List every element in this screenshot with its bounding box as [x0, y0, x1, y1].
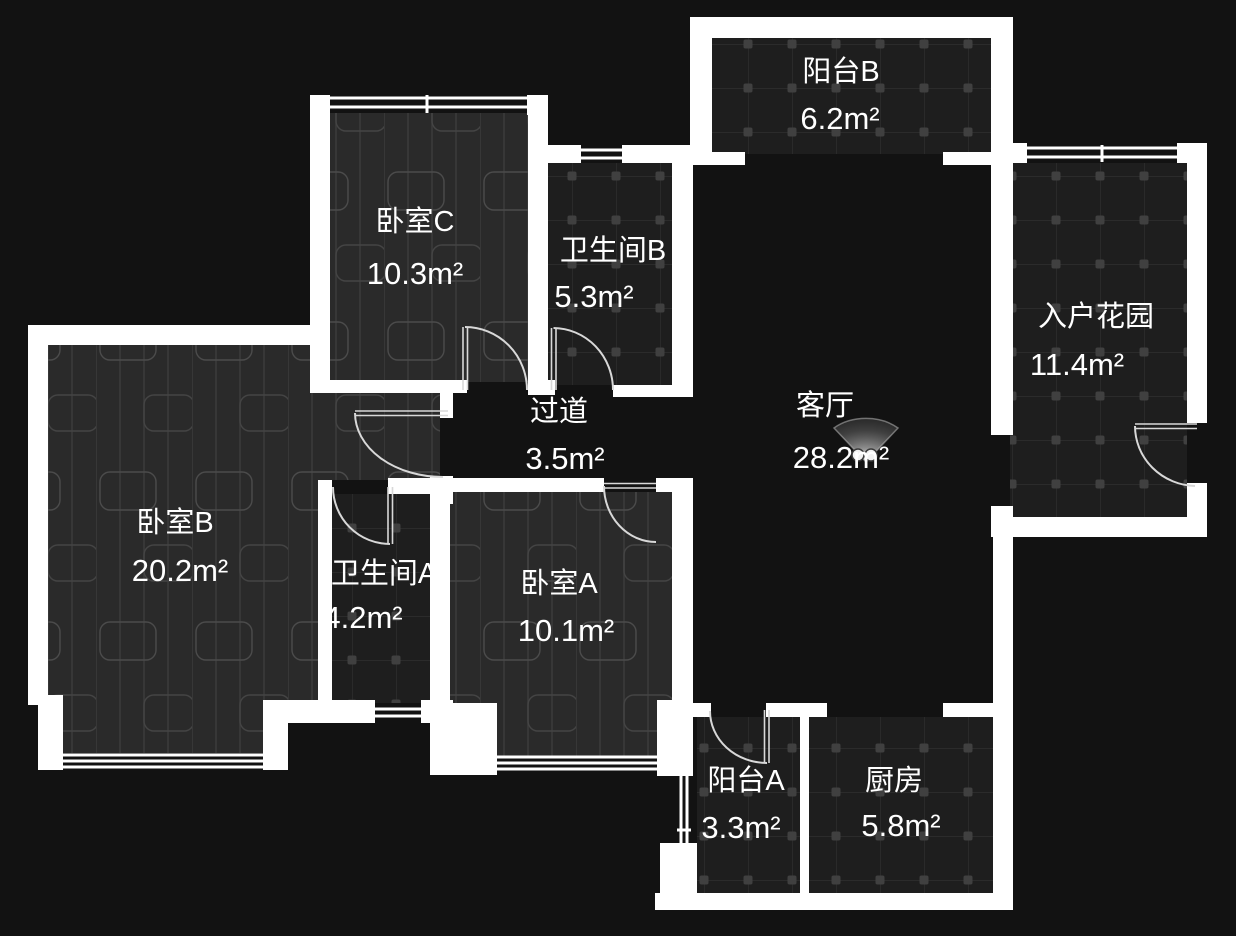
room-floor-kitchen[interactable]: [809, 717, 993, 893]
room-floor-bedroom-c[interactable]: [330, 113, 528, 382]
room-area-kitchen: 5.8m²: [861, 808, 940, 843]
room-area-bedroom-c: 10.3m²: [367, 256, 463, 291]
room-label-living-room: 客厅: [796, 389, 854, 422]
room-area-bathroom-b: 5.3m²: [554, 279, 633, 314]
room-label-hallway: 过道: [530, 395, 588, 428]
room-label-entry-garden: 入户花园: [1038, 300, 1154, 333]
room-area-bathroom-a: 4.2m²: [323, 600, 402, 635]
room-area-hallway: 3.5m²: [525, 441, 604, 476]
room-label-bathroom-b: 卫生间B: [560, 234, 666, 267]
room-label-balcony-b: 阳台B: [802, 55, 879, 88]
floor-plan-canvas: 阳台B 6.2m² 卧室C 10.3m² 卫生间B 5.3m² 入户花园 11.…: [0, 0, 1236, 936]
room-floor-entry-garden[interactable]: [1010, 163, 1187, 517]
room-label-bathroom-a: 卫生间A: [331, 557, 438, 590]
room-label-bedroom-b: 卧室B: [136, 506, 213, 539]
room-label-balcony-a: 阳台A: [707, 764, 785, 797]
room-label-kitchen: 厨房: [865, 764, 923, 797]
room-area-balcony-a: 3.3m²: [701, 810, 780, 845]
room-area-entry-garden: 11.4m²: [1030, 347, 1124, 382]
room-area-balcony-b: 6.2m²: [800, 101, 879, 136]
room-area-living-room: 28.2m²: [793, 440, 889, 475]
room-area-bedroom-b: 20.2m²: [132, 553, 228, 588]
floor-plan: 阳台B 6.2m² 卧室C 10.3m² 卫生间B 5.3m² 入户花园 11.…: [0, 0, 1236, 936]
room-label-bedroom-c: 卧室C: [376, 205, 455, 238]
room-area-bedroom-a: 10.1m²: [518, 613, 614, 648]
room-label-bedroom-a: 卧室A: [520, 567, 598, 600]
room-floor-balcony-a[interactable]: [697, 717, 801, 893]
room-floor-bathroom-b[interactable]: [548, 163, 672, 385]
